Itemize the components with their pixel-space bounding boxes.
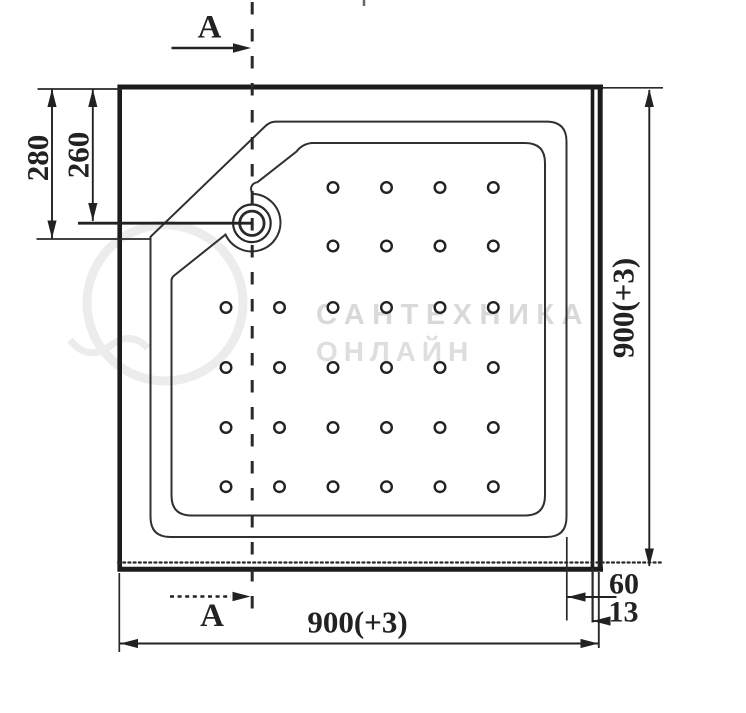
svg-text:900(+3): 900(+3) [307, 605, 407, 640]
svg-text:13: 13 [609, 596, 639, 629]
svg-text:900(+3): 900(+3) [606, 258, 641, 358]
svg-text:A: A [200, 598, 224, 634]
svg-text:ОНЛАЙН: ОНЛАЙН [316, 335, 474, 367]
svg-text:A: A [198, 10, 222, 46]
svg-text:280: 280 [20, 135, 55, 182]
svg-text:САНТЕХНИКА: САНТЕХНИКА [316, 299, 590, 331]
svg-text:260: 260 [61, 132, 96, 179]
